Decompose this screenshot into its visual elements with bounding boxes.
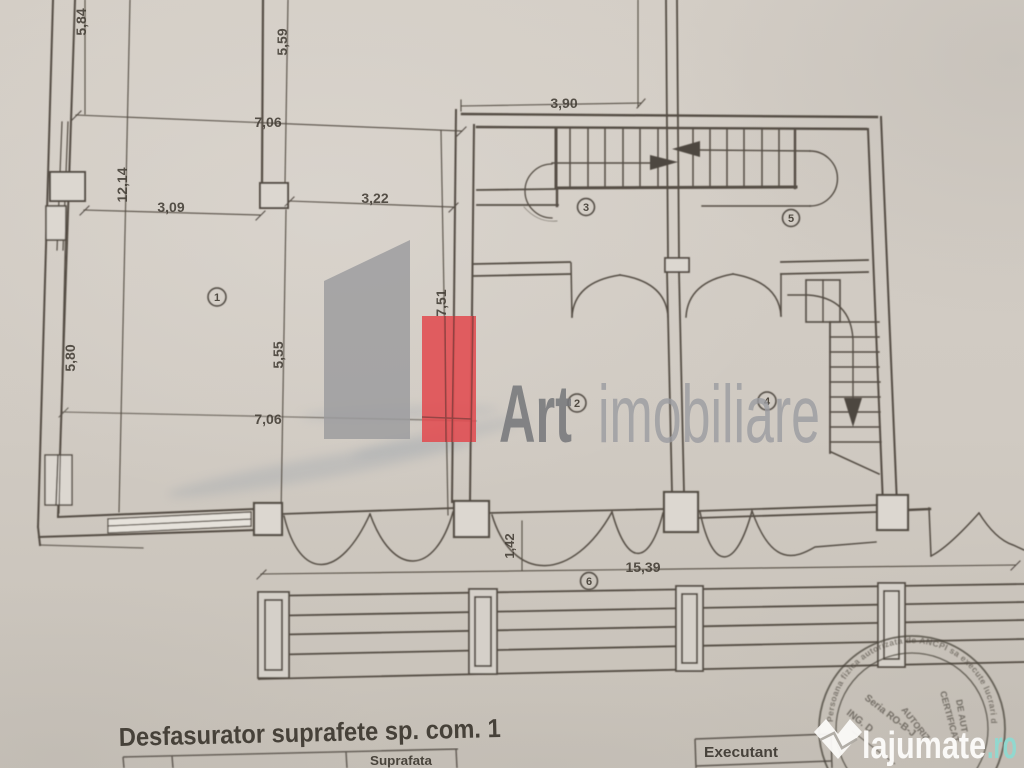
- svg-text:12,14: 12,14: [114, 167, 130, 202]
- svg-text:3: 3: [583, 202, 589, 214]
- svg-text:7,06: 7,06: [254, 411, 281, 427]
- svg-text:1: 1: [214, 292, 220, 304]
- svg-text:3,90: 3,90: [550, 95, 577, 111]
- svg-text:imobiliare: imobiliare: [598, 369, 820, 460]
- svg-text:5,59: 5,59: [274, 28, 290, 55]
- svg-text:5,55: 5,55: [270, 341, 286, 368]
- svg-text:1,42: 1,42: [502, 533, 517, 558]
- svg-text:2: 2: [574, 398, 580, 410]
- svg-text:Executant: Executant: [704, 744, 778, 761]
- svg-text:5: 5: [788, 213, 794, 225]
- svg-text:3,22: 3,22: [361, 190, 388, 206]
- svg-text:5,80: 5,80: [62, 344, 78, 371]
- svg-text:15,39: 15,39: [625, 559, 660, 575]
- svg-text:7,06: 7,06: [254, 114, 281, 130]
- svg-text:Suprafata: Suprafata: [370, 753, 433, 768]
- svg-text:.ro: .ro: [987, 725, 1017, 767]
- svg-text:3,09: 3,09: [157, 199, 184, 215]
- svg-text:Art: Art: [499, 369, 572, 460]
- svg-text:5,84: 5,84: [73, 8, 89, 35]
- svg-text:7,51: 7,51: [433, 289, 449, 316]
- svg-text:6: 6: [586, 576, 592, 588]
- svg-text:lajumate: lajumate: [862, 725, 986, 767]
